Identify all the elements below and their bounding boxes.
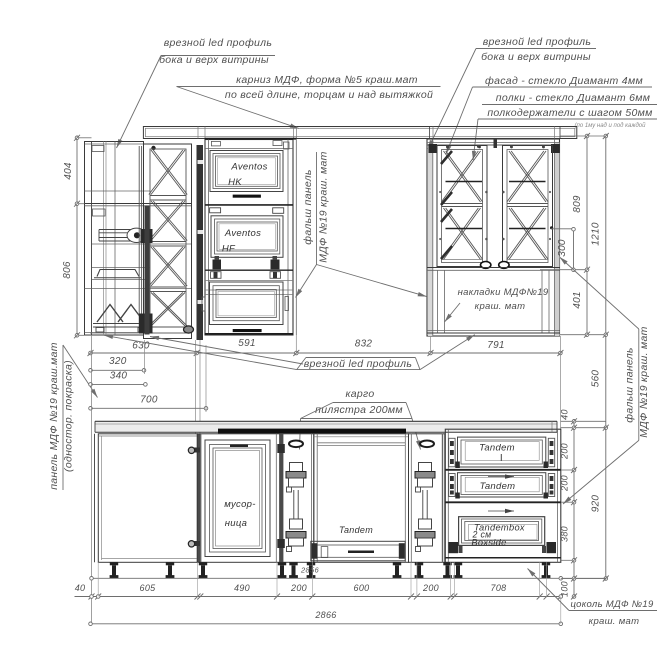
svg-text:HF: HF (222, 244, 236, 255)
svg-text:Aventos: Aventos (224, 228, 261, 239)
svg-text:по всей длине, торцам и над вы: по всей длине, торцам и над вытяжкой (225, 89, 433, 101)
svg-text:809: 809 (572, 195, 583, 213)
svg-text:560: 560 (591, 370, 602, 388)
svg-text:600: 600 (354, 583, 370, 593)
svg-text:панель МДФ №19 краш.мат: панель МДФ №19 краш.мат (48, 342, 60, 490)
svg-text:708: 708 (491, 583, 507, 593)
svg-text:фасад - стекло Диамант 4мм: фасад - стекло Диамант 4мм (485, 75, 643, 87)
svg-text:карго: карго (345, 388, 374, 400)
svg-text:200: 200 (290, 583, 307, 593)
svg-text:200: 200 (422, 583, 439, 593)
svg-text:(одностор. покраска): (одностор. покраска) (63, 360, 75, 472)
svg-text:1210: 1210 (591, 222, 602, 246)
svg-text:мусор-: мусор- (224, 499, 255, 510)
svg-text:Boxside: Boxside (471, 538, 506, 548)
svg-text:(по 1му над и под каждой: (по 1му над и под каждой (575, 122, 647, 129)
svg-text:200: 200 (560, 475, 570, 492)
svg-text:490: 490 (234, 583, 250, 593)
svg-text:806: 806 (62, 261, 73, 279)
svg-text:700: 700 (140, 395, 158, 406)
svg-text:фальш панель: фальш панель (302, 169, 314, 245)
svg-text:фальш панель: фальш панель (624, 347, 636, 423)
svg-text:бока и верх витрины: бока и верх витрины (481, 51, 591, 63)
svg-text:380: 380 (560, 526, 570, 542)
svg-text:591: 591 (238, 338, 256, 349)
svg-text:пилястра 200мм: пилястра 200мм (315, 404, 403, 416)
svg-text:карниз МДФ, форма №5 краш.мат: карниз МДФ, форма №5 краш.мат (236, 74, 418, 86)
svg-text:40: 40 (560, 409, 570, 420)
svg-text:Tandem: Tandem (339, 525, 373, 535)
svg-text:401: 401 (572, 291, 583, 309)
svg-text:краш. мат: краш. мат (589, 616, 640, 627)
svg-text:Tandem: Tandem (479, 443, 515, 454)
svg-text:920: 920 (591, 495, 602, 513)
svg-text:врезной led профиль: врезной led профиль (483, 36, 591, 48)
svg-text:Tandem: Tandem (480, 481, 516, 492)
svg-text:320: 320 (109, 356, 127, 367)
svg-text:832: 832 (355, 339, 373, 350)
svg-text:100: 100 (560, 581, 570, 597)
svg-text:340: 340 (110, 371, 128, 382)
svg-text:полкодержатели с шагом 50мм: полкодержатели с шагом 50мм (487, 107, 652, 119)
svg-text:40: 40 (75, 583, 86, 593)
svg-text:2856: 2856 (300, 566, 319, 575)
svg-text:МДФ №19 краш. мат: МДФ №19 краш. мат (318, 151, 330, 262)
svg-text:791: 791 (487, 340, 505, 351)
svg-text:ница: ница (225, 518, 248, 529)
svg-text:полки - стекло Диамант 6мм: полки - стекло Диамант 6мм (496, 92, 651, 104)
svg-text:200: 200 (560, 443, 570, 460)
svg-text:2866: 2866 (314, 610, 336, 620)
svg-text:404: 404 (63, 162, 74, 180)
svg-text:краш. мат: краш. мат (475, 301, 526, 312)
svg-text:МДФ №19 краш. мат: МДФ №19 краш. мат (638, 326, 650, 437)
svg-text:бока и верх витрины: бока и верх витрины (159, 54, 269, 66)
svg-text:HK: HK (228, 177, 242, 188)
svg-text:врезной led профиль: врезной led профиль (304, 358, 412, 370)
svg-text:накладки МДФ№19: накладки МДФ№19 (458, 287, 549, 298)
svg-text:врезной led профиль: врезной led профиль (164, 37, 272, 49)
svg-text:цоколь МДФ №19: цоколь МДФ №19 (570, 599, 654, 610)
svg-text:Aventos: Aventos (230, 162, 267, 173)
svg-text:605: 605 (140, 583, 157, 593)
svg-text:300: 300 (557, 239, 568, 257)
